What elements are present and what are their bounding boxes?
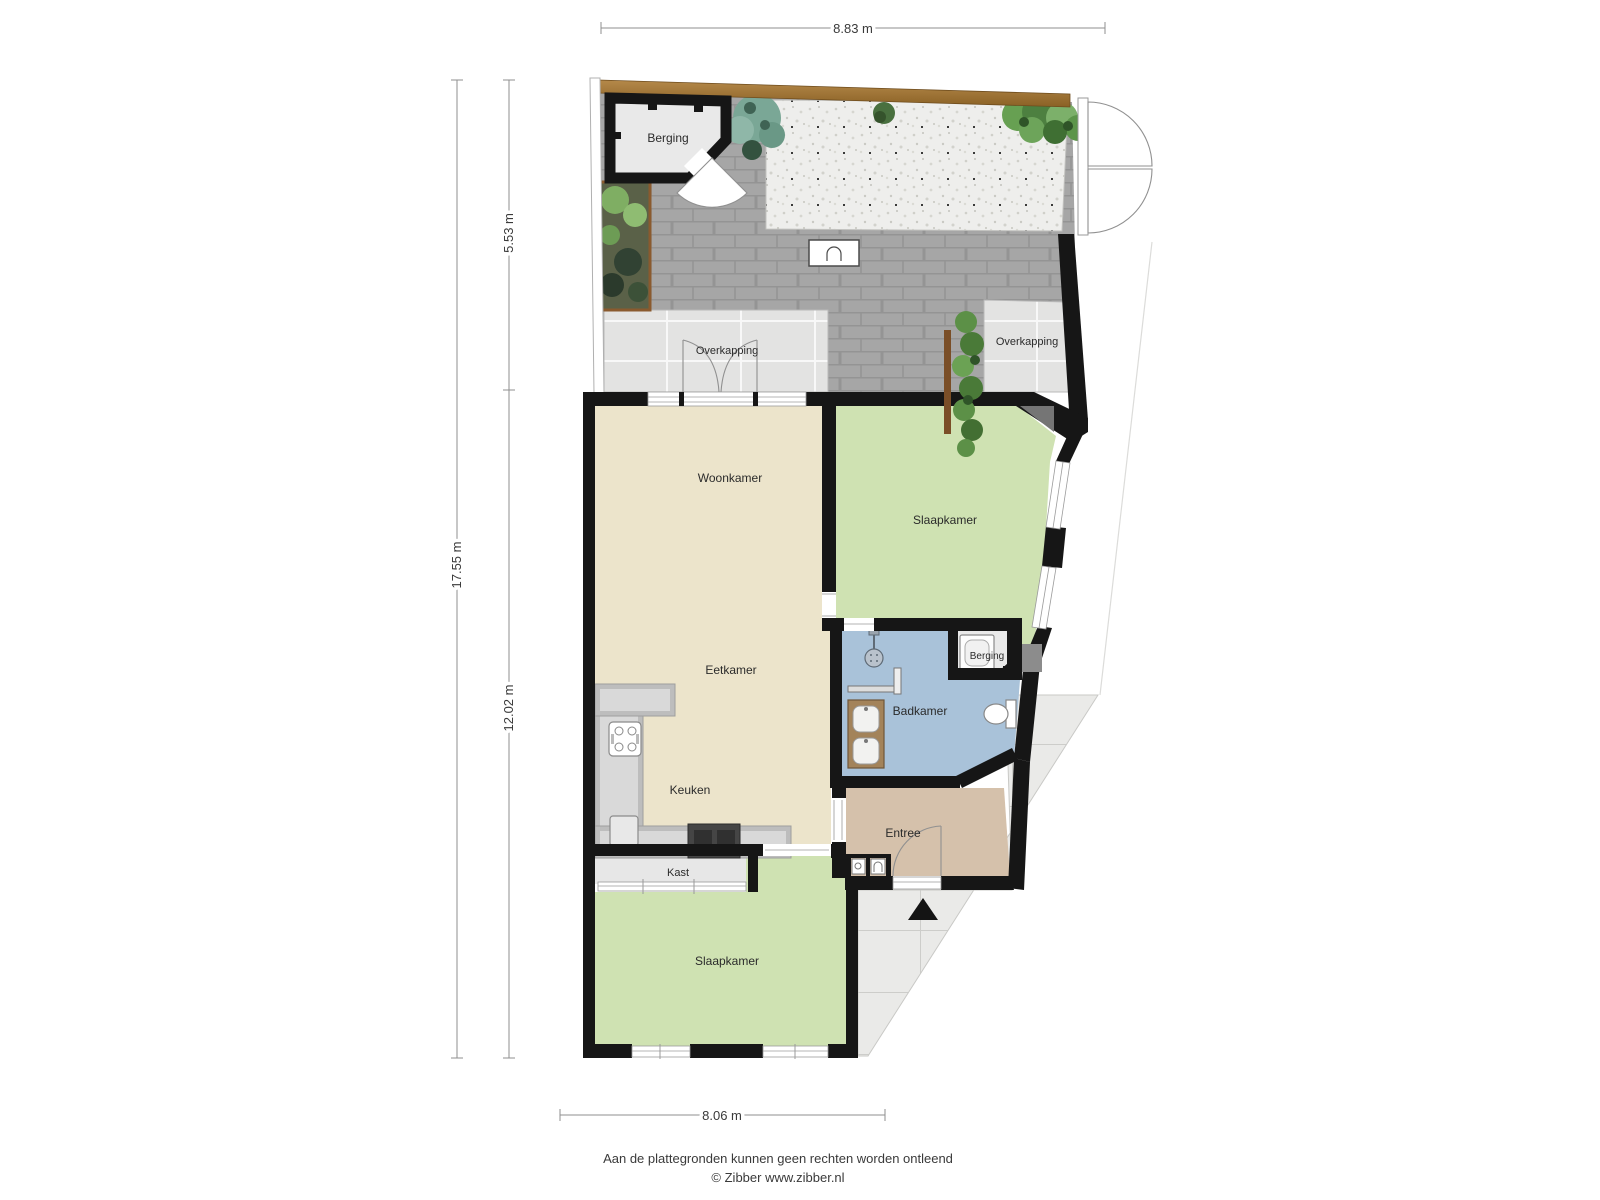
window-right-1 [1046, 461, 1070, 529]
window-bottom-2 [763, 1044, 828, 1059]
plot-boundary-line [1100, 242, 1152, 695]
dimension-top: 8.83 m [601, 21, 1105, 36]
kitchen-sink-icon [610, 816, 638, 846]
garden-gate [1078, 98, 1152, 235]
doorway-bedroom-bottom [763, 844, 831, 856]
window-sliding-top [648, 392, 806, 406]
dim-top-label: 8.83 m [833, 21, 873, 36]
dimension-bottom: 8.06 m [560, 1108, 885, 1123]
shed-wall-tooth [694, 103, 703, 112]
wc-fixtures [846, 854, 891, 876]
label-overkapping-right: Overkapping [996, 336, 1058, 348]
shed-wall-tooth [612, 132, 621, 139]
dimension-left-upper: 5.53 m [501, 80, 516, 390]
planter-strip [600, 182, 650, 310]
label-eetkamer: Eetkamer [705, 663, 756, 677]
label-berging-klein: Berging [970, 651, 1004, 662]
doorway-bathroom [844, 618, 874, 631]
bush-small-dark [873, 102, 895, 124]
vanity-double-sink [848, 700, 884, 768]
label-berging-garden: Berging [647, 131, 688, 145]
label-overkapping-left: Overkapping [696, 345, 758, 357]
footer-credit: © Zibber www.zibber.nl [711, 1170, 844, 1185]
dim-left-upper-label: 5.53 m [501, 213, 516, 253]
label-keuken: Keuken [670, 783, 711, 797]
dim-bottom-label: 8.06 m [702, 1108, 742, 1123]
label-entree: Entree [885, 826, 921, 840]
floor-bedroom-top [836, 406, 1056, 655]
floor-plan-drawing: Berging Overkapping Overkapping Woonkame… [0, 0, 1600, 1200]
dim-left-total-label: 17.55 m [449, 542, 464, 589]
label-badkamer: Badkamer [893, 704, 948, 718]
label-woonkamer: Woonkamer [698, 471, 762, 485]
label-slaapkamer-onder: Slaapkamer [695, 954, 759, 968]
dimension-left-lower: 12.02 m [501, 390, 516, 1058]
window-bottom-1 [632, 1044, 690, 1059]
dim-left-lower-label: 12.02 m [501, 685, 516, 732]
dimension-left-total: 17.55 m [449, 80, 464, 1058]
label-slaapkamer-boven: Slaapkamer [913, 513, 977, 527]
label-kast: Kast [667, 867, 689, 879]
doorway-entry-side [832, 798, 846, 842]
doorway-hall [822, 592, 836, 618]
wall-niche [1022, 644, 1042, 672]
footer-disclaimer: Aan de plattegronden kunnen geen rechten… [603, 1151, 953, 1166]
shed-wall-tooth [648, 101, 657, 110]
stove-icon [609, 722, 641, 756]
garden-drain-box [809, 240, 859, 266]
floor-plan-page: Berging Overkapping Overkapping Woonkame… [0, 0, 1600, 1200]
